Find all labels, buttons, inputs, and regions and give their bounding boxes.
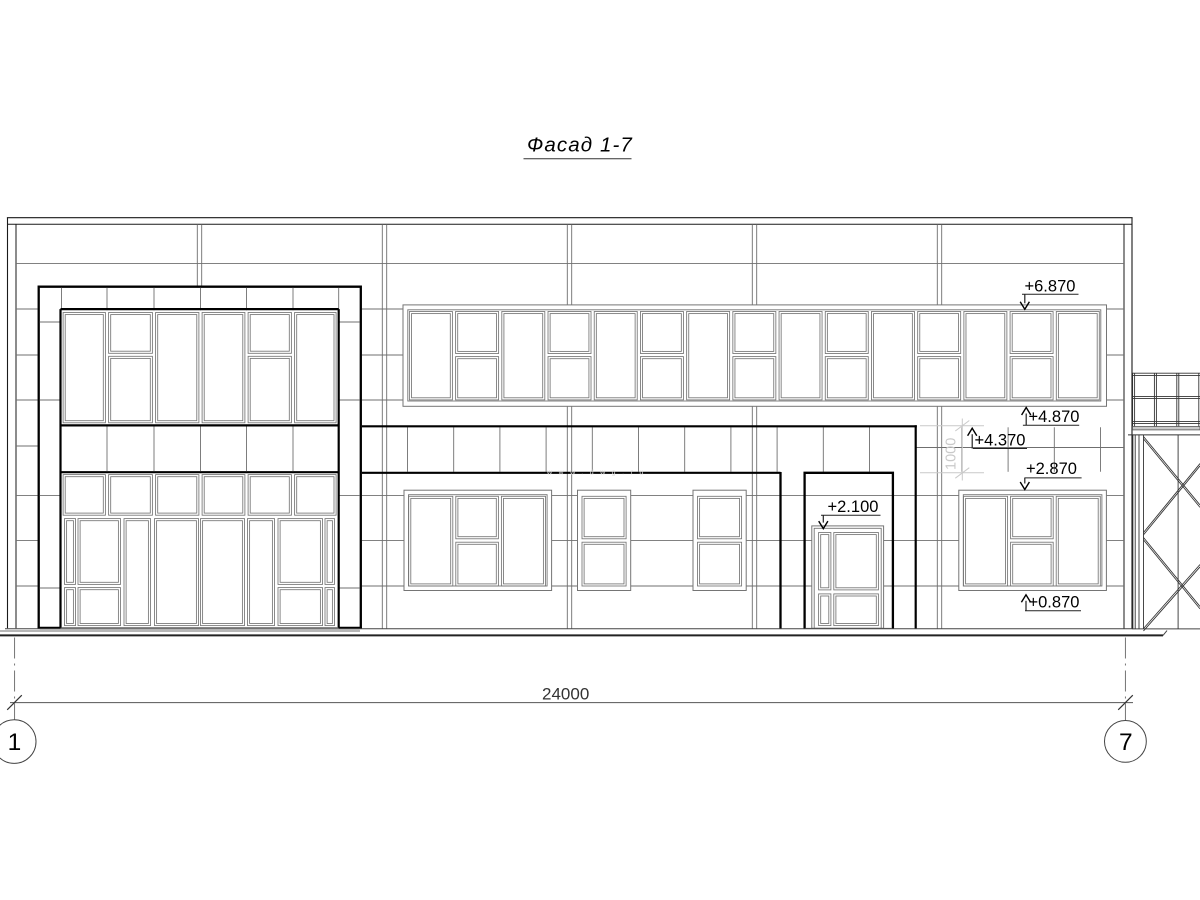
svg-text:1: 1 [8, 729, 22, 756]
svg-text:+2.100: +2.100 [828, 498, 879, 516]
svg-text:+4.370: +4.370 [975, 432, 1026, 450]
svg-text:+4.870: +4.870 [1029, 408, 1080, 426]
svg-text:+6.870: +6.870 [1025, 278, 1076, 296]
svg-text:+0.870: +0.870 [1029, 594, 1080, 612]
svg-text:+2.870: +2.870 [1026, 460, 1077, 478]
svg-text:Фасад 1-7: Фасад 1-7 [527, 134, 633, 157]
svg-text:7: 7 [1119, 729, 1133, 756]
svg-text:24000: 24000 [542, 685, 589, 704]
svg-text:1000: 1000 [944, 438, 960, 470]
svg-text:www.dwg.ru: www.dwg.ru [546, 469, 650, 476]
